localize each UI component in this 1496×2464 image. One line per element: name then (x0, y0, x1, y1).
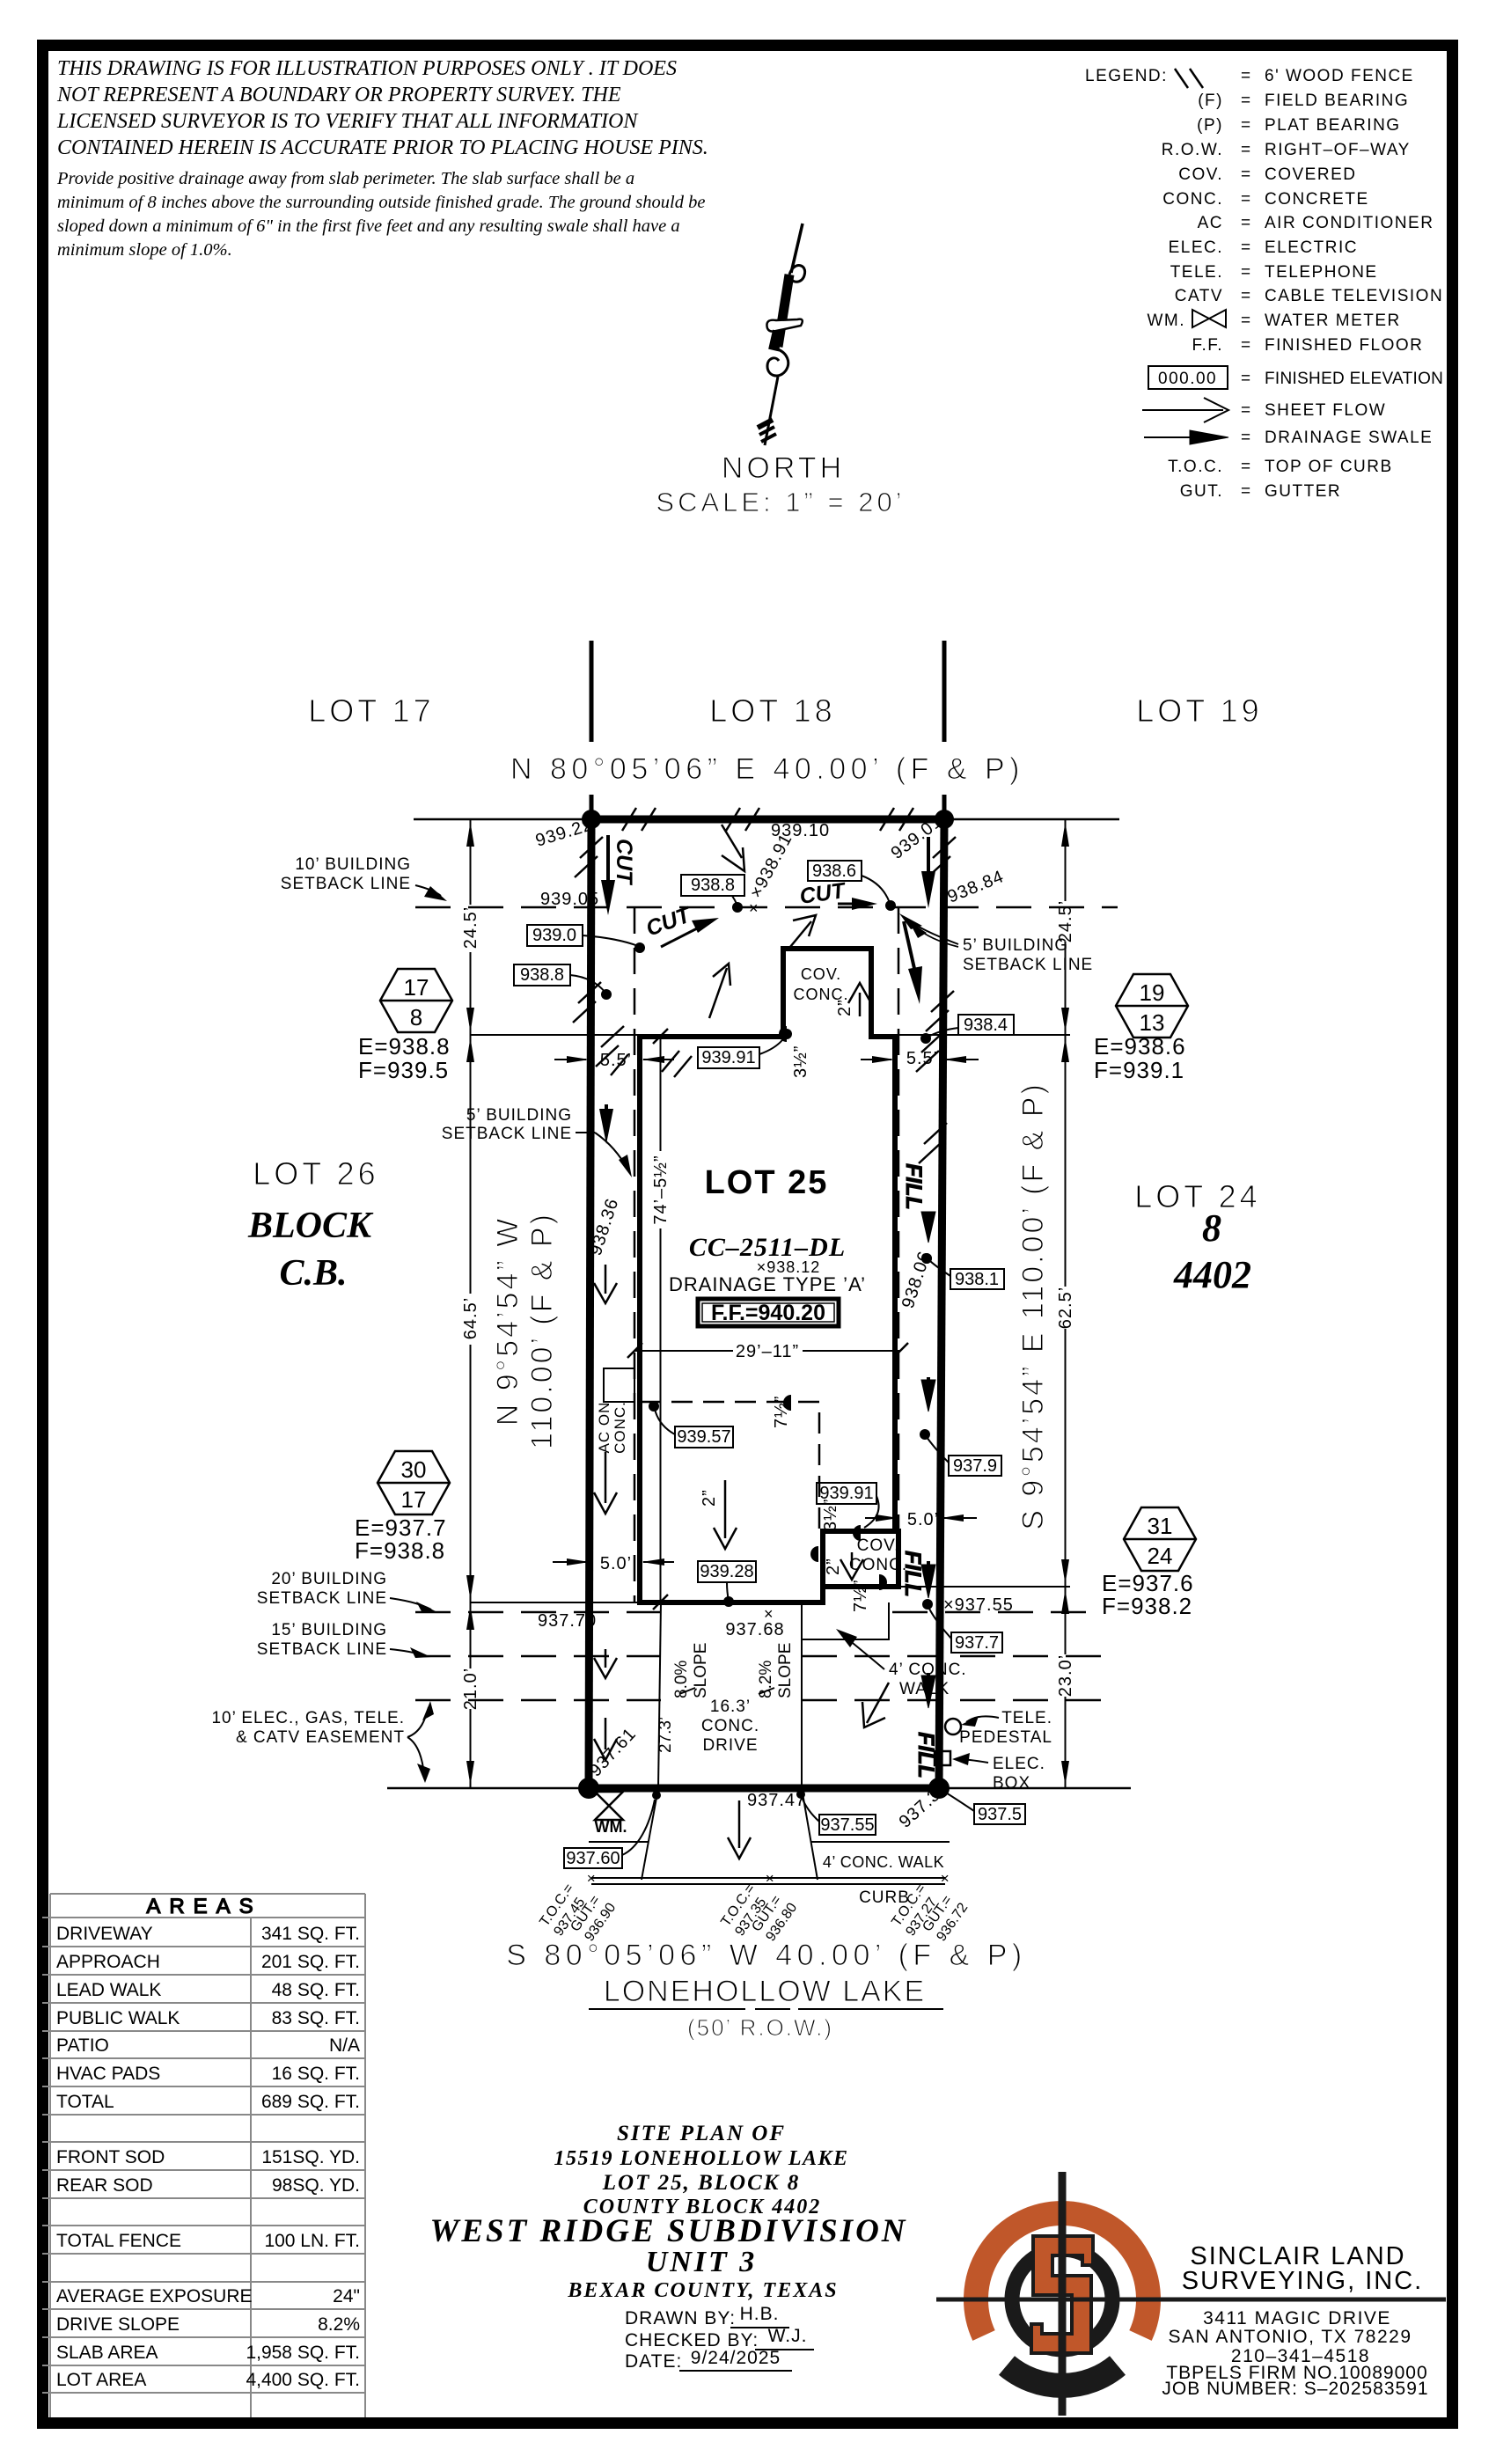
svg-text:4402: 4402 (1173, 1253, 1251, 1296)
svg-text:SLAB AREA: SLAB AREA (56, 2343, 158, 2363)
svg-text:937.7: 937.7 (955, 1633, 999, 1653)
svg-text:N 9°54’54” W: N 9°54’54” W (491, 1216, 524, 1426)
svg-text:=: = (1241, 214, 1252, 232)
svg-text:=: = (1241, 190, 1252, 209)
svg-text:24.5’: 24.5’ (1056, 900, 1075, 942)
svg-text:=: = (1241, 458, 1252, 476)
svg-text:JOB NUMBER: S–202583591: JOB NUMBER: S–202583591 (1162, 2379, 1428, 2399)
svg-text:4’ CONC. WALK: 4’ CONC. WALK (823, 1853, 944, 1871)
svg-text:FRONT SOD: FRONT SOD (56, 2147, 165, 2167)
svg-text:CONC.: CONC. (612, 1401, 628, 1454)
svg-text:LOT 25: LOT 25 (705, 1164, 829, 1201)
svg-text:APPROACH: APPROACH (56, 1952, 160, 1972)
svg-text:20’ BUILDING: 20’ BUILDING (271, 1570, 387, 1588)
svg-text:24": 24" (333, 2286, 360, 2306)
svg-text:151SQ. YD.: 151SQ. YD. (261, 2147, 360, 2167)
svg-text:6' WOOD FENCE: 6' WOOD FENCE (1265, 67, 1414, 85)
svg-text:938.8: 938.8 (520, 965, 564, 985)
svg-text:8: 8 (1202, 1206, 1221, 1250)
svg-text:DRAINAGE SWALE: DRAINAGE SWALE (1265, 429, 1433, 447)
svg-text:937.47: 937.47 (747, 1791, 806, 1810)
svg-text:THIS DRAWING IS FOR ILLUSTRATI: THIS DRAWING IS FOR ILLUSTRATION PURPOSE… (57, 57, 677, 80)
svg-text:F.F.=940.20: F.F.=940.20 (711, 1301, 825, 1325)
svg-text:FILL: FILL (900, 1551, 925, 1597)
svg-text:GUT.: GUT. (1180, 482, 1223, 501)
svg-text:COV.: COV. (1178, 165, 1223, 184)
svg-text:LONEHOLLOW LAKE: LONEHOLLOW LAKE (604, 1975, 926, 2008)
svg-text:SETBACK LINE: SETBACK LINE (257, 1589, 387, 1608)
svg-text:ELECTRIC: ELECTRIC (1265, 238, 1358, 257)
svg-text:3½”: 3½” (791, 1045, 810, 1078)
svg-text:3½”: 3½” (821, 1499, 840, 1531)
svg-text:29’–11”: 29’–11” (736, 1342, 799, 1361)
svg-text:7½”: 7½” (851, 1580, 870, 1612)
svg-text:=: = (1241, 165, 1252, 184)
svg-text:(F): (F) (1198, 92, 1223, 110)
svg-text:83 SQ. FT.: 83 SQ. FT. (272, 2008, 360, 2028)
svg-text:9/24/2025: 9/24/2025 (691, 2348, 781, 2368)
svg-text:15519 LONEHOLLOW LAKE: 15519 LONEHOLLOW LAKE (554, 2147, 848, 2170)
svg-text:Provide positive drainage away: Provide positive drainage away from slab… (56, 169, 634, 188)
svg-text:939.0: 939.0 (532, 926, 576, 945)
svg-text:S 9°54’54” E 110.00’ (F & P): S 9°54’54” E 110.00’ (F & P) (1016, 1082, 1050, 1530)
svg-text:×: × (766, 1870, 774, 1887)
svg-text:sloped down a minimum of 6" in: sloped down a minimum of 6" in the first… (57, 216, 680, 236)
svg-text:F=938.8: F=938.8 (355, 1537, 445, 1564)
svg-text:N 80°05’06” E 40.00’ (F & P): N 80°05’06” E 40.00’ (F & P) (510, 752, 1024, 786)
svg-text:4,400 SQ. FT.: 4,400 SQ. FT. (246, 2370, 360, 2390)
svg-text:1,958 SQ. FT.: 1,958 SQ. FT. (246, 2343, 360, 2363)
svg-text:938.6: 938.6 (812, 862, 856, 881)
svg-text:=: = (1241, 336, 1252, 355)
svg-text:27.3’: 27.3’ (656, 1717, 675, 1753)
svg-text:×: × (587, 1870, 596, 1887)
svg-text:AIR CONDITIONER: AIR CONDITIONER (1265, 214, 1434, 232)
svg-text:24: 24 (1148, 1543, 1173, 1569)
svg-text:TOP OF CURB: TOP OF CURB (1265, 458, 1393, 476)
svg-text:RIGHT–OF–WAY: RIGHT–OF–WAY (1265, 141, 1411, 159)
svg-text:201 SQ. FT.: 201 SQ. FT. (261, 1952, 360, 1972)
svg-text:CONTAINED HEREIN IS ACCURATE P: CONTAINED HEREIN IS ACCURATE PRIOR TO PL… (57, 136, 708, 159)
svg-text:937.70: 937.70 (538, 1611, 597, 1631)
svg-text:98SQ. YD.: 98SQ. YD. (272, 2175, 360, 2196)
svg-text:PLAT BEARING: PLAT BEARING (1265, 116, 1401, 135)
svg-text:LEGEND:: LEGEND: (1085, 67, 1168, 85)
svg-text:AREAS: AREAS (146, 1895, 261, 1918)
svg-text:SHEET FLOW: SHEET FLOW (1265, 401, 1386, 420)
svg-text:8: 8 (410, 1004, 422, 1030)
svg-text:74’–5½”: 74’–5½” (651, 1155, 671, 1224)
svg-text:939.05: 939.05 (540, 890, 599, 909)
svg-text:LOT 26: LOT 26 (253, 1155, 378, 1192)
svg-text:LOT 19: LOT 19 (1136, 693, 1262, 729)
svg-text:937.60: 937.60 (566, 1849, 620, 1868)
svg-text:LEAD WALK: LEAD WALK (56, 1980, 161, 2000)
svg-text:WM.: WM. (595, 1818, 627, 1836)
svg-text:ELEC.: ELEC. (1169, 238, 1223, 257)
svg-text:SITE PLAN OF: SITE PLAN OF (617, 2122, 786, 2145)
svg-text:8.2%: 8.2% (318, 2314, 360, 2335)
svg-text:ELEC.: ELEC. (993, 1755, 1045, 1773)
svg-text:CABLE TELEVISION: CABLE TELEVISION (1265, 287, 1443, 305)
svg-text:COVERED: COVERED (1265, 165, 1356, 184)
svg-text:2”: 2” (700, 1489, 719, 1507)
svg-text:C.B.: C.B. (279, 1253, 347, 1294)
svg-text:SURVEYING, INC.: SURVEYING, INC. (1182, 2267, 1423, 2295)
svg-text:=: = (1241, 67, 1252, 85)
svg-text:(50’ R.O.W.): (50’ R.O.W.) (687, 2014, 833, 2041)
svg-text:AVERAGE EXPOSURE: AVERAGE EXPOSURE (56, 2286, 253, 2306)
svg-text:TOTAL: TOTAL (56, 2092, 114, 2112)
svg-text:BOX: BOX (993, 1774, 1030, 1793)
svg-text:DRIVEWAY: DRIVEWAY (56, 1924, 153, 1944)
svg-text:TELE.: TELE. (1170, 263, 1223, 282)
svg-text:N/A: N/A (329, 2035, 360, 2056)
svg-text:16 SQ. FT.: 16 SQ. FT. (272, 2064, 360, 2084)
svg-text:8.2%: 8.2% (757, 1661, 775, 1698)
svg-text:110.00’ (F & P): 110.00’ (F & P) (525, 1212, 559, 1449)
svg-text:939.57: 939.57 (677, 1427, 730, 1447)
svg-text:100 LN. FT.: 100 LN. FT. (264, 2231, 360, 2251)
svg-text:=: = (1241, 312, 1252, 330)
svg-text:F=938.2: F=938.2 (1102, 1593, 1192, 1619)
svg-text:CONCRETE: CONCRETE (1265, 190, 1369, 209)
svg-text:REAR SOD: REAR SOD (56, 2175, 153, 2196)
svg-text:48 SQ. FT.: 48 SQ. FT. (272, 1980, 360, 2000)
svg-text:GUTTER: GUTTER (1265, 482, 1341, 501)
svg-text:938.4: 938.4 (964, 1016, 1008, 1035)
svg-text:62.5’: 62.5’ (1056, 1287, 1075, 1329)
svg-text:5’ BUILDING: 5’ BUILDING (466, 1106, 572, 1125)
svg-text:COV.: COV. (857, 1536, 900, 1555)
svg-text:W.J.: W.J. (768, 2326, 808, 2346)
svg-text:LOT 24: LOT 24 (1134, 1178, 1260, 1214)
svg-text:FILL: FILL (913, 1732, 938, 1778)
svg-text:F.F.: F.F. (1192, 336, 1223, 355)
svg-text:TELE.: TELE. (1001, 1709, 1052, 1727)
svg-text:×937.55: ×937.55 (943, 1595, 1014, 1615)
svg-text:DRIVE: DRIVE (702, 1736, 758, 1755)
svg-text:937.5: 937.5 (978, 1805, 1022, 1824)
svg-text:2”: 2” (824, 1558, 843, 1575)
svg-text:17: 17 (404, 974, 429, 1001)
svg-text:939.91: 939.91 (701, 1048, 755, 1067)
svg-text:FILL: FILL (901, 1163, 926, 1210)
svg-text:PUBLIC WALK: PUBLIC WALK (56, 2008, 180, 2028)
svg-text:5’ BUILDING: 5’ BUILDING (963, 936, 1068, 955)
svg-text:=: = (1241, 429, 1252, 447)
svg-text:(P): (P) (1197, 116, 1223, 135)
svg-text:15’ BUILDING: 15’ BUILDING (271, 1621, 387, 1639)
svg-text:=: = (1241, 116, 1252, 135)
svg-text:F=939.1: F=939.1 (1094, 1057, 1184, 1083)
svg-text:341 SQ. FT.: 341 SQ. FT. (261, 1924, 360, 1944)
svg-text:DRAINAGE TYPE ’A’: DRAINAGE TYPE ’A’ (669, 1273, 866, 1295)
svg-text:LOT AREA: LOT AREA (56, 2370, 146, 2390)
svg-text:2”: 2” (835, 999, 854, 1016)
svg-text:BLOCK: BLOCK (247, 1206, 374, 1246)
svg-text:LICENSED SURVEYOR IS TO VERIFY: LICENSED SURVEYOR IS TO VERIFY THAT ALL … (56, 110, 639, 133)
svg-text:LOT 18: LOT 18 (709, 693, 835, 729)
svg-text:minimum of 8 inches above the: minimum of 8 inches above the surroundin… (57, 193, 705, 212)
svg-text:FINISHED FLOOR: FINISHED FLOOR (1265, 336, 1423, 355)
svg-text:SETBACK LINE: SETBACK LINE (281, 875, 411, 893)
svg-text:CONC.: CONC. (701, 1717, 759, 1735)
svg-text:=: = (1241, 287, 1252, 305)
svg-text:938.8: 938.8 (691, 876, 735, 895)
svg-text:E=938.8: E=938.8 (358, 1033, 451, 1060)
svg-text:WM.: WM. (1147, 312, 1185, 330)
svg-text:19: 19 (1140, 979, 1165, 1006)
svg-text:UNIT 3: UNIT 3 (646, 2246, 758, 2278)
svg-text:CONC.: CONC. (849, 1556, 907, 1574)
svg-text:DRAWN BY:: DRAWN BY: (625, 2308, 736, 2328)
svg-text:=: = (1241, 401, 1252, 420)
svg-text:64.5’: 64.5’ (461, 1297, 480, 1339)
svg-text:TOTAL FENCE: TOTAL FENCE (56, 2231, 181, 2251)
svg-text:30: 30 (401, 1456, 427, 1483)
svg-text:SLOPE: SLOPE (776, 1643, 795, 1698)
svg-text:=: = (1241, 482, 1252, 501)
svg-text:& CATV EASEMENT: & CATV EASEMENT (236, 1728, 405, 1747)
svg-text:21.0’: 21.0’ (461, 1668, 480, 1710)
svg-text:F=939.5: F=939.5 (358, 1057, 449, 1083)
svg-text:=: = (1241, 370, 1252, 388)
svg-text:PEDESTAL: PEDESTAL (959, 1728, 1052, 1747)
svg-text:CUT: CUT (612, 839, 636, 886)
svg-text:PATIO: PATIO (56, 2035, 109, 2056)
svg-text:23.0’: 23.0’ (1056, 1654, 1075, 1697)
svg-text:DATE:: DATE: (625, 2351, 682, 2372)
svg-text:SETBACK LINE: SETBACK LINE (963, 956, 1093, 974)
svg-text:16.3’: 16.3’ (710, 1698, 751, 1716)
svg-text:R.O.W.: R.O.W. (1162, 141, 1223, 159)
svg-text:AC: AC (1198, 214, 1223, 232)
svg-text:5.5’: 5.5’ (906, 1049, 938, 1068)
svg-text:=: = (1241, 141, 1252, 159)
svg-text:5.5’: 5.5’ (600, 1051, 632, 1070)
svg-text:E=938.6: E=938.6 (1094, 1033, 1186, 1060)
svg-text:SAN ANTONIO, TX 78229: SAN ANTONIO, TX 78229 (1169, 2327, 1412, 2347)
svg-text:937.9: 937.9 (953, 1456, 997, 1476)
svg-text:5.0’: 5.0’ (600, 1554, 632, 1573)
svg-text:31: 31 (1148, 1513, 1173, 1539)
svg-text:13: 13 (1140, 1009, 1165, 1036)
svg-text:FIELD BEARING: FIELD BEARING (1265, 92, 1409, 110)
svg-text:FINISHED ELEVATION: FINISHED ELEVATION (1265, 370, 1443, 388)
svg-text:8.0%: 8.0% (672, 1661, 691, 1698)
svg-text:TELEPHONE: TELEPHONE (1265, 263, 1378, 282)
svg-text:H.B.: H.B. (740, 2304, 780, 2324)
svg-text:=: = (1241, 238, 1252, 257)
svg-text:000.00: 000.00 (1158, 370, 1217, 388)
svg-text:7½”: 7½” (772, 1396, 791, 1428)
svg-text:DRIVE SLOPE: DRIVE SLOPE (56, 2314, 180, 2335)
svg-text:937.55: 937.55 (820, 1815, 874, 1835)
svg-text:BEXAR COUNTY, TEXAS: BEXAR COUNTY, TEXAS (567, 2279, 838, 2302)
svg-text:938.1: 938.1 (955, 1270, 999, 1289)
svg-text:LOT 17: LOT 17 (308, 693, 434, 729)
svg-text:17: 17 (401, 1486, 427, 1513)
svg-text:689 SQ. FT.: 689 SQ. FT. (261, 2092, 360, 2112)
svg-text:SCALE: 1” = 20’: SCALE: 1” = 20’ (656, 487, 905, 517)
svg-text:×: × (941, 1870, 950, 1887)
svg-text:WATER METER: WATER METER (1265, 312, 1401, 330)
svg-text:10’ ELEC., GAS, TELE.: 10’ ELEC., GAS, TELE. (211, 1709, 405, 1727)
svg-text:minimum slope of 1.0%.: minimum slope of 1.0%. (57, 240, 232, 260)
svg-text:CONC.: CONC. (1162, 190, 1223, 209)
svg-text:5.0’: 5.0’ (907, 1510, 939, 1529)
svg-text:10’ BUILDING: 10’ BUILDING (295, 855, 411, 874)
svg-text:S 80°05’06” W 40.00’ (F & P): S 80°05’06” W 40.00’ (F & P) (506, 1939, 1027, 1972)
svg-text:24.5’: 24.5’ (461, 906, 480, 949)
svg-text:CATV: CATV (1175, 287, 1223, 305)
svg-text:HVAC PADS: HVAC PADS (56, 2064, 160, 2084)
svg-text:=: = (1241, 263, 1252, 282)
svg-text:=: = (1241, 92, 1252, 110)
svg-text:NOT REPRESENT A BOUNDARY OR PR: NOT REPRESENT A BOUNDARY OR PROPERTY SUR… (56, 84, 621, 106)
svg-text:AC ON: AC ON (596, 1402, 612, 1454)
svg-text:SLOPE: SLOPE (692, 1643, 710, 1698)
svg-text:SETBACK LINE: SETBACK LINE (442, 1125, 572, 1143)
svg-text:NORTH: NORTH (722, 451, 845, 485)
svg-text:937.68: 937.68 (725, 1620, 784, 1639)
svg-text:939.28: 939.28 (700, 1562, 753, 1581)
svg-text:×: × (749, 899, 759, 917)
svg-text:SETBACK LINE: SETBACK LINE (257, 1640, 387, 1659)
svg-text:T.O.C.: T.O.C. (1168, 458, 1223, 476)
svg-text:3411 MAGIC DRIVE: 3411 MAGIC DRIVE (1203, 2308, 1391, 2328)
svg-text:WEST RIDGE SUBDIVISION: WEST RIDGE SUBDIVISION (429, 2213, 907, 2249)
svg-text:COV.: COV. (801, 965, 841, 983)
svg-text:LOT 25, BLOCK 8: LOT 25, BLOCK 8 (602, 2171, 800, 2195)
